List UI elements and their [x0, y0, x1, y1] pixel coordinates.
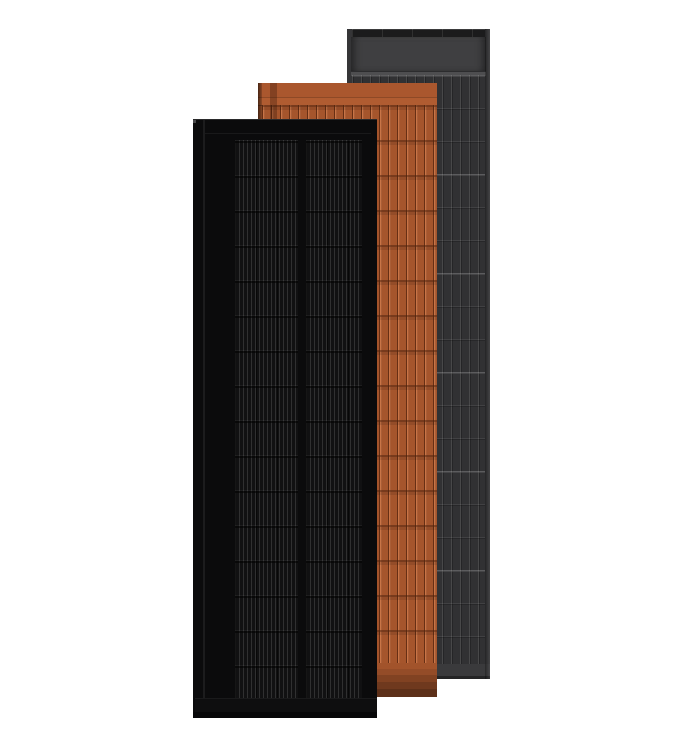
black-panel-top-rail: [205, 133, 371, 134]
black-panel-left-rail: [203, 120, 205, 718]
product-render: [0, 0, 684, 748]
terracotta-top-band: [258, 83, 437, 106]
gray-panel-right-frame: [485, 29, 490, 679]
gray-panel-blank-band: [351, 37, 486, 71]
black-panel-bottom-rail: [195, 698, 377, 712]
black-panel-corner-notch: [193, 120, 196, 123]
solar-panel-black: [193, 119, 377, 718]
black-panel-cell-column-left: [235, 140, 298, 699]
black-panel-bottom-edge: [193, 712, 377, 718]
black-panel-cell-column-right: [306, 140, 362, 699]
